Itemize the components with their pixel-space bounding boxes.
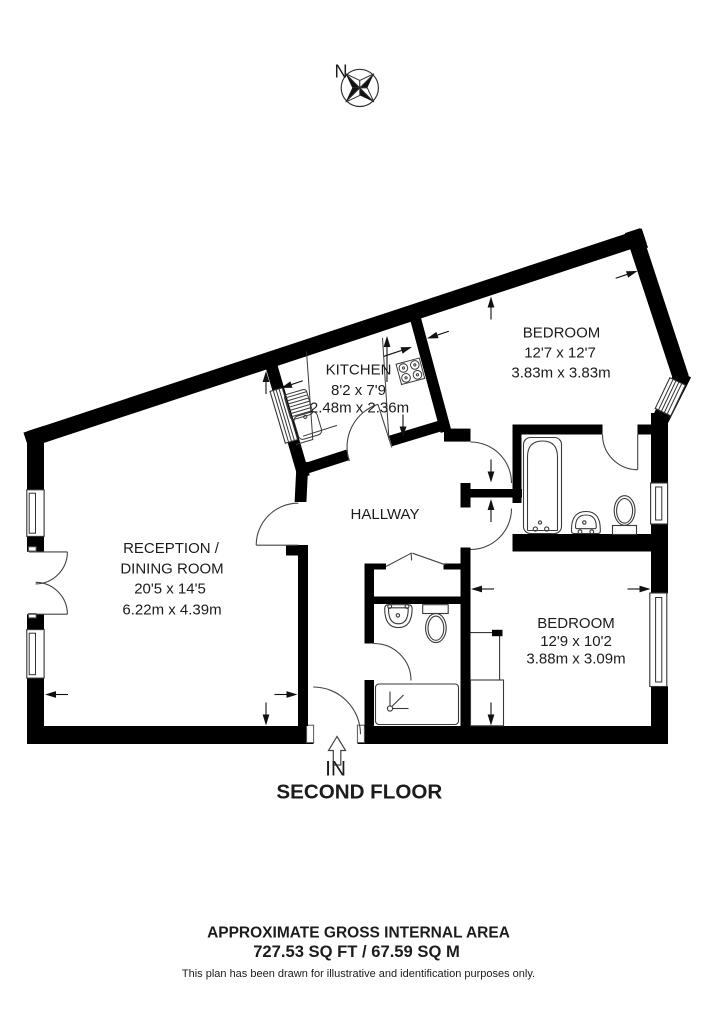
svg-text:3.83m x 3.83m: 3.83m x 3.83m xyxy=(511,365,610,382)
svg-text:SECOND FLOOR: SECOND FLOOR xyxy=(276,781,442,804)
svg-text:HALLWAY: HALLWAY xyxy=(351,506,420,523)
svg-text:This plan has been drawn for i: This plan has been drawn for illustrativ… xyxy=(182,968,535,980)
svg-text:12'7 x 12'7: 12'7 x 12'7 xyxy=(524,345,596,362)
svg-text:BEDROOM: BEDROOM xyxy=(537,615,615,632)
svg-text:IN: IN xyxy=(325,758,346,781)
svg-text:RECEPTION /: RECEPTION / xyxy=(123,540,220,557)
svg-text:20'5 x 14'5: 20'5 x 14'5 xyxy=(134,581,206,598)
svg-text:N: N xyxy=(335,62,348,82)
svg-text:APPROXIMATE GROSS INTERNAL ARE: APPROXIMATE GROSS INTERNAL AREA xyxy=(207,925,510,942)
svg-text:BEDROOM: BEDROOM xyxy=(523,325,601,342)
svg-text:6.22m x 4.39m: 6.22m x 4.39m xyxy=(122,602,221,619)
svg-text:727.53 SQ FT / 67.59 SQ M: 727.53 SQ FT / 67.59 SQ M xyxy=(253,942,460,961)
svg-text:DINING ROOM: DINING ROOM xyxy=(120,561,223,578)
svg-text:KITCHEN: KITCHEN xyxy=(326,361,392,378)
svg-text:3.88m x 3.09m: 3.88m x 3.09m xyxy=(526,651,625,668)
svg-text:2.48m x 2.36m: 2.48m x 2.36m xyxy=(310,400,409,417)
svg-text:12'9 x 10'2: 12'9 x 10'2 xyxy=(540,633,612,650)
svg-text:8'2 x 7'9: 8'2 x 7'9 xyxy=(331,382,386,399)
